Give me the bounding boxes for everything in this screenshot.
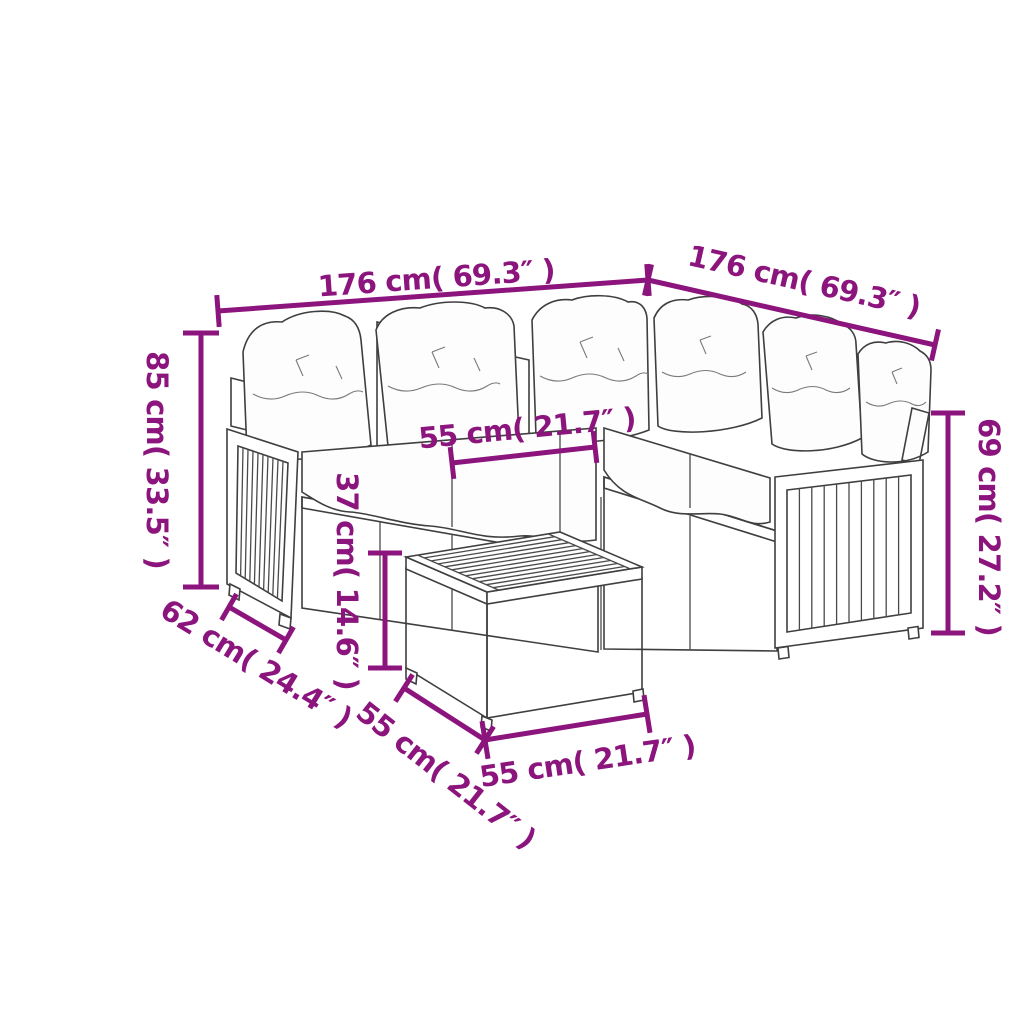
- right-arm-panel: [775, 460, 923, 659]
- dimension-label-armrest-height: 69 cm( 27.2″ ): [972, 418, 1006, 636]
- sofa-foot: [908, 627, 919, 640]
- back-cushion: [243, 311, 371, 459]
- back-cushion: [654, 297, 762, 433]
- dimension-label-seat-depth: 62 cm( 24.4″ ): [154, 592, 358, 735]
- product-dimension-diagram: 176 cm( 69.3″ ) 176 cm( 69.3″ ) 85 cm( 3…: [0, 0, 1024, 1024]
- coffee-table: [406, 532, 644, 731]
- seat-cushion-band-right: [604, 428, 770, 524]
- dimension-label-backrest-height: 85 cm( 33.5″ ): [140, 351, 174, 569]
- seat-cushions: [302, 428, 770, 541]
- back-cushion: [763, 315, 862, 451]
- diagram-canvas: 176 cm( 69.3″ ) 176 cm( 69.3″ ) 85 cm( 3…: [0, 0, 1024, 1024]
- dimension-armrest-height: 69 cm( 27.2″ ): [931, 413, 1006, 636]
- left-arm-panel: [227, 429, 298, 629]
- dimension-seat-depth: 62 cm( 24.4″ ): [154, 592, 358, 735]
- dimension-backrest-height: 85 cm( 33.5″ ): [140, 333, 219, 587]
- dimension-table-width: 55 cm( 21.7″ ): [477, 695, 698, 794]
- sofa-foot: [778, 647, 789, 660]
- dimension-label-table-height: 37 cm( 14.6″ ): [330, 472, 364, 690]
